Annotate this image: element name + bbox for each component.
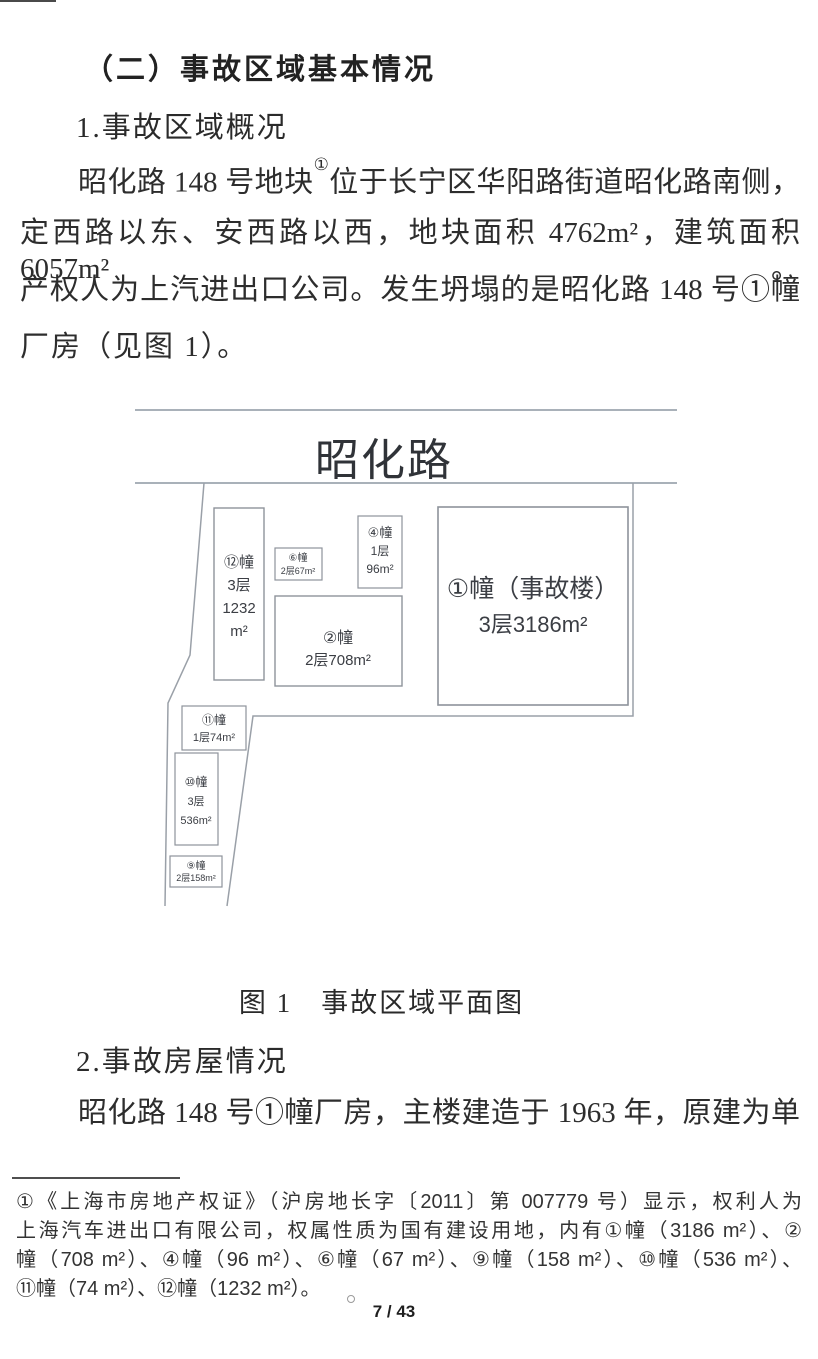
building-12-label-line-4: m² <box>230 623 248 640</box>
building-12-label-line-3: 1232 <box>222 600 255 617</box>
building-4-label-line-3: 96m² <box>366 562 393 576</box>
document-page: （二）事故区域基本情况 1.事故区域概况 昭化路 148 号地块①位于长宁区华阳… <box>0 0 818 1359</box>
building-2-label-line-1: ②幢 <box>323 629 353 647</box>
road-label: 昭化路 <box>315 436 453 485</box>
footnote-line-1: ①《上海市房地产权证》（沪房地长字〔2011〕第 007779 号）显示，权利人… <box>16 1189 802 1216</box>
paragraph-1-line-1-pre: 昭化路 148 号地块 <box>78 167 314 199</box>
footnote-line-3: 幢（708 m²）、④幢（96 m²）、⑥幢（67 m²）、⑨幢（158 m²）… <box>16 1247 802 1274</box>
subsection-2-title: 2.事故房屋情况 <box>76 1038 288 1080</box>
building-12-box <box>214 508 264 680</box>
building-1-label-line-2: 3层3186m² <box>479 612 588 637</box>
paragraph-1-line-1: 昭化路 148 号地块①位于长宁区华阳路街道昭化路南侧， <box>78 158 800 201</box>
building-10-label-line-2: 3层 <box>187 795 204 808</box>
site-plan-svg: 昭化路 ⑫幢 3层 1232 m² ⑥幢 2层67m² ④幢 1层 96m² ②… <box>0 400 818 920</box>
building-6-label-line-1: ⑥幢 <box>289 551 308 564</box>
building-4-label-line-1: ④幢 <box>368 525 393 540</box>
paragraph-1-line-1-post: 位于长宁区华阳路街道昭化路南侧， <box>329 167 800 199</box>
building-10-label-line-3: 536m² <box>180 815 212 827</box>
building-11-label-line-1: ⑪幢 <box>202 712 226 727</box>
scan-artifact-line <box>0 0 56 2</box>
building-1-label-line-1: ①幢（事故楼） <box>447 575 619 603</box>
building-10-label-line-1: ⑩幢 <box>185 774 208 789</box>
building-9-label-line-2: 2层158m² <box>176 873 216 883</box>
footnote-separator <box>12 1177 180 1179</box>
building-11-label-line-2: 1层74m² <box>193 731 236 744</box>
site-plan-figure: 昭化路 ⑫幢 3层 1232 m² ⑥幢 2层67m² ④幢 1层 96m² ②… <box>0 400 818 920</box>
figure-caption: 图 1 事故区域平面图 <box>0 981 763 1020</box>
paragraph-1-line-3: 产权人为上汽进出口公司。发生坍塌的是昭化路 148 号①幢 <box>20 272 800 308</box>
footnote-reference-mark: ① <box>314 155 330 174</box>
building-12-label-line-1: ⑫幢 <box>224 553 254 571</box>
building-9-label-line-1: ⑨幢 <box>187 859 206 872</box>
building-6-label-line-2: 2层67m² <box>281 566 316 576</box>
footnote-line-2: 上海汽车进出口有限公司，权属性质为国有建设用地，内有①幢（3186 m²）、② <box>16 1218 802 1245</box>
subsection-1-title: 1.事故区域概况 <box>76 104 288 146</box>
paragraph-1-line-4: 厂房（见图 1）。 <box>20 329 800 365</box>
section-heading: （二）事故区域基本情况 <box>84 46 436 88</box>
page-number: 7 / 43 <box>0 1302 788 1322</box>
footnote-line-4: ⑪幢（74 m²）、⑫幢（1232 m²）。 <box>16 1276 802 1303</box>
building-1-box <box>438 507 628 705</box>
paragraph-2-line-1: 昭化路 148 号①幢厂房，主楼建造于 1963 年，原建为单 <box>78 1095 800 1131</box>
building-2-label-line-2: 2层708m² <box>305 652 371 669</box>
building-4-label-line-2: 1层 <box>371 544 390 558</box>
building-12-label-line-2: 3层 <box>227 577 250 594</box>
